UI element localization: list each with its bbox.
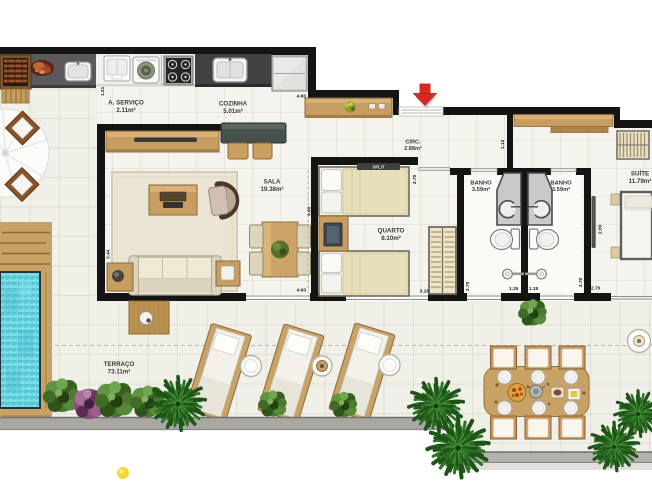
svg-text:11.79m²: 11.79m² — [629, 178, 652, 185]
svg-text:5.01m²: 5.01m² — [223, 108, 243, 115]
svg-text:BANHO: BANHO — [470, 181, 492, 187]
svg-text:4.60: 4.60 — [297, 94, 307, 100]
svg-text:2.70: 2.70 — [465, 281, 471, 291]
svg-text:CIRC.: CIRC. — [405, 140, 421, 146]
svg-text:8.10m²: 8.10m² — [381, 235, 401, 242]
svg-text:1.25: 1.25 — [529, 286, 539, 292]
svg-text:2.70: 2.70 — [412, 174, 418, 184]
svg-text:2.00: 2.00 — [598, 224, 604, 234]
svg-text:SUÍTE: SUÍTE — [631, 170, 649, 178]
svg-text:1.12: 1.12 — [500, 139, 506, 149]
svg-text:73.11m²: 73.11m² — [108, 369, 131, 376]
svg-text:2.70: 2.70 — [578, 277, 584, 287]
svg-text:3.59m²: 3.59m² — [552, 186, 570, 193]
svg-text:2.70: 2.70 — [591, 286, 601, 292]
svg-text:BANHO: BANHO — [550, 181, 572, 187]
svg-text:4.60: 4.60 — [297, 288, 307, 294]
svg-text:SPLIT: SPLIT — [372, 165, 385, 170]
svg-text:19.38m²: 19.38m² — [260, 186, 283, 193]
svg-text:2.11m²: 2.11m² — [116, 107, 135, 114]
svg-text:QUARTO: QUARTO — [378, 228, 405, 235]
svg-text:2.88m²: 2.88m² — [404, 145, 422, 152]
svg-text:A. SERVIÇO: A. SERVIÇO — [108, 100, 144, 107]
svg-text:1.51: 1.51 — [100, 86, 106, 96]
svg-text:3.16: 3.16 — [420, 289, 430, 295]
svg-text:4.60: 4.60 — [307, 206, 313, 216]
svg-text:COZINHA: COZINHA — [219, 101, 248, 108]
svg-text:SALA: SALA — [264, 179, 281, 186]
svg-text:3.59m²: 3.59m² — [472, 186, 490, 193]
svg-text:TERRAÇO: TERRAÇO — [104, 361, 135, 368]
svg-text:3.44: 3.44 — [106, 249, 112, 259]
svg-text:1.25: 1.25 — [509, 286, 519, 292]
